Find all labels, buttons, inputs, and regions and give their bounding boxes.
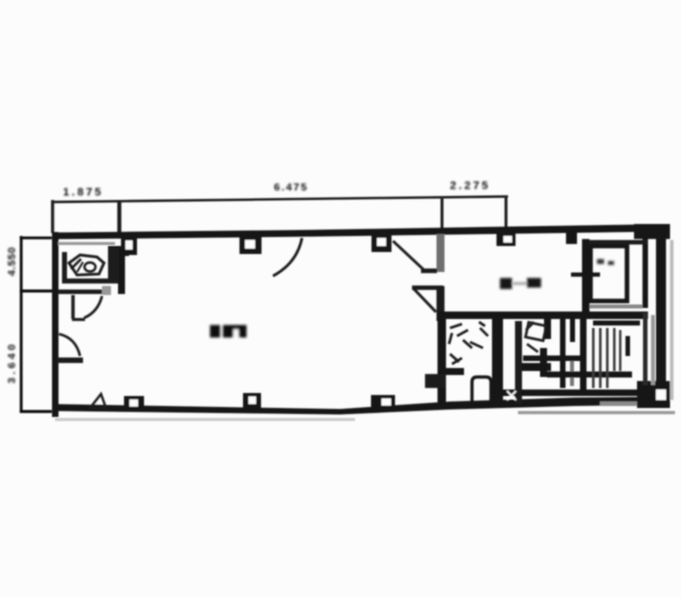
svg-text:6.475: 6.475 — [274, 182, 308, 194]
svg-text:1.875: 1.875 — [63, 187, 104, 199]
svg-text:4.550: 4.550 — [6, 247, 18, 276]
svg-text:2.275: 2.275 — [450, 180, 491, 192]
svg-text:3.640: 3.640 — [6, 341, 18, 383]
